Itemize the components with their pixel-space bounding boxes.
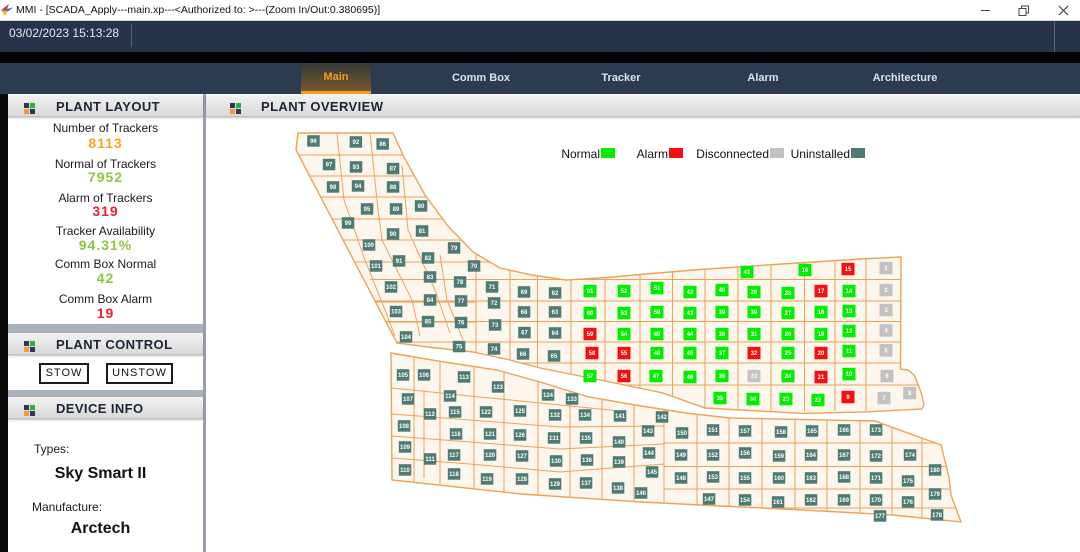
svg-text:57: 57: [587, 374, 594, 380]
svg-text:96: 96: [310, 139, 317, 145]
svg-text:117: 117: [449, 453, 459, 459]
svg-text:64: 64: [552, 331, 559, 337]
svg-text:164: 164: [806, 453, 817, 459]
svg-text:25: 25: [785, 351, 792, 357]
svg-text:122: 122: [481, 410, 492, 416]
svg-text:149: 149: [676, 453, 687, 459]
svg-text:127: 127: [517, 454, 528, 460]
svg-text:136: 136: [582, 458, 593, 464]
svg-text:89: 89: [393, 207, 400, 213]
svg-text:60: 60: [587, 311, 594, 317]
svg-text:130: 130: [551, 459, 562, 465]
svg-text:135: 135: [581, 436, 592, 442]
svg-text:46: 46: [687, 375, 694, 381]
svg-text:30: 30: [751, 310, 758, 316]
svg-text:126: 126: [515, 433, 526, 439]
svg-text:154: 154: [740, 498, 751, 504]
svg-text:18: 18: [818, 310, 825, 316]
svg-text:73: 73: [492, 323, 499, 329]
svg-text:37: 37: [719, 351, 726, 357]
svg-text:148: 148: [676, 476, 687, 482]
svg-text:81: 81: [419, 229, 426, 235]
svg-text:23: 23: [783, 397, 790, 403]
svg-text:14: 14: [846, 289, 853, 295]
svg-text:111: 111: [425, 457, 435, 463]
svg-text:161: 161: [773, 500, 784, 506]
svg-text:40: 40: [719, 288, 726, 294]
svg-text:94: 94: [355, 184, 362, 190]
svg-text:131: 131: [549, 436, 560, 442]
svg-text:97: 97: [326, 163, 333, 169]
svg-text:80: 80: [418, 204, 425, 210]
svg-text:168: 168: [839, 475, 850, 481]
svg-text:141: 141: [615, 414, 626, 420]
svg-text:150: 150: [677, 431, 688, 437]
svg-text:167: 167: [839, 453, 850, 459]
svg-text:120: 120: [485, 453, 496, 459]
svg-text:69: 69: [521, 290, 528, 296]
svg-text:44: 44: [687, 332, 694, 338]
svg-text:123: 123: [493, 385, 504, 391]
svg-text:34: 34: [750, 397, 757, 403]
svg-text:68: 68: [521, 310, 528, 316]
svg-text:85: 85: [425, 320, 432, 326]
svg-text:76: 76: [458, 321, 465, 327]
svg-text:56: 56: [621, 374, 628, 380]
svg-text:129: 129: [550, 482, 561, 488]
svg-text:12: 12: [846, 329, 853, 335]
svg-text:114: 114: [445, 394, 455, 400]
svg-text:11: 11: [846, 349, 853, 355]
svg-text:74: 74: [491, 347, 498, 353]
svg-text:70: 70: [471, 264, 478, 270]
svg-text:21: 21: [818, 375, 825, 381]
svg-text:16: 16: [802, 268, 809, 274]
svg-text:175: 175: [903, 479, 914, 485]
svg-text:48: 48: [654, 351, 661, 357]
svg-text:138: 138: [613, 486, 624, 492]
svg-text:91: 91: [396, 259, 403, 265]
svg-text:145: 145: [647, 470, 658, 476]
svg-text:50: 50: [654, 310, 661, 316]
svg-text:139: 139: [614, 460, 625, 466]
svg-text:84: 84: [427, 298, 434, 304]
svg-text:100: 100: [364, 243, 375, 249]
svg-text:147: 147: [704, 497, 715, 503]
svg-text:133: 133: [567, 397, 578, 403]
svg-text:112: 112: [425, 412, 435, 418]
svg-text:121: 121: [485, 432, 496, 438]
svg-text:125: 125: [515, 409, 526, 415]
svg-text:104: 104: [401, 335, 412, 341]
svg-text:151: 151: [708, 428, 719, 434]
svg-text:58: 58: [589, 351, 596, 357]
svg-text:53: 53: [621, 311, 628, 317]
svg-text:47: 47: [653, 374, 660, 380]
svg-text:110: 110: [400, 468, 410, 474]
svg-text:28: 28: [785, 291, 792, 297]
svg-text:27: 27: [785, 311, 792, 317]
svg-text:103: 103: [391, 310, 402, 316]
svg-text:24: 24: [785, 374, 792, 380]
svg-text:142: 142: [657, 415, 668, 421]
svg-text:66: 66: [520, 352, 527, 358]
svg-text:20: 20: [818, 351, 825, 357]
svg-text:43: 43: [687, 311, 694, 317]
svg-text:13: 13: [846, 309, 853, 315]
svg-text:174: 174: [905, 453, 916, 459]
svg-text:170: 170: [871, 498, 882, 504]
svg-text:156: 156: [740, 451, 751, 457]
svg-text:179: 179: [930, 492, 941, 498]
svg-text:177: 177: [875, 514, 886, 520]
svg-text:42: 42: [687, 290, 694, 296]
svg-text:32: 32: [751, 351, 758, 357]
svg-text:165: 165: [807, 429, 818, 435]
svg-text:82: 82: [425, 256, 432, 262]
svg-text:159: 159: [774, 454, 785, 460]
svg-text:51: 51: [654, 286, 661, 292]
svg-text:71: 71: [489, 285, 496, 291]
svg-text:29: 29: [751, 290, 758, 296]
svg-text:17: 17: [818, 289, 825, 295]
svg-text:106: 106: [419, 373, 430, 379]
svg-text:35: 35: [717, 396, 724, 402]
svg-text:178: 178: [932, 513, 943, 519]
svg-text:155: 155: [740, 476, 751, 482]
svg-text:157: 157: [740, 429, 751, 435]
svg-text:99: 99: [345, 221, 352, 227]
svg-text:33: 33: [751, 374, 758, 380]
svg-text:163: 163: [806, 476, 817, 482]
svg-text:93: 93: [353, 165, 360, 171]
svg-text:86: 86: [379, 142, 386, 148]
svg-text:108: 108: [399, 424, 410, 430]
svg-text:116: 116: [451, 432, 461, 438]
svg-text:19: 19: [818, 332, 825, 338]
svg-text:31: 31: [751, 332, 758, 338]
svg-text:15: 15: [845, 267, 852, 273]
svg-text:152: 152: [708, 453, 719, 459]
svg-text:124: 124: [543, 393, 554, 399]
svg-text:95: 95: [364, 207, 371, 213]
svg-text:153: 153: [708, 475, 719, 481]
svg-text:67: 67: [521, 331, 528, 337]
svg-text:55: 55: [621, 351, 628, 357]
svg-text:75: 75: [456, 345, 463, 351]
svg-text:22: 22: [815, 398, 822, 404]
svg-text:162: 162: [806, 498, 817, 504]
svg-text:38: 38: [719, 332, 726, 338]
svg-text:92: 92: [353, 140, 360, 146]
svg-text:79: 79: [451, 246, 458, 252]
svg-text:72: 72: [491, 301, 498, 307]
svg-text:101: 101: [371, 264, 382, 270]
svg-text:78: 78: [457, 280, 464, 286]
svg-text:49: 49: [654, 332, 661, 338]
svg-text:132: 132: [550, 413, 561, 419]
svg-text:52: 52: [621, 289, 628, 295]
svg-text:146: 146: [636, 491, 647, 497]
svg-text:45: 45: [687, 351, 694, 357]
svg-text:160: 160: [774, 476, 785, 482]
svg-text:63: 63: [552, 310, 559, 316]
svg-text:65: 65: [551, 354, 558, 360]
svg-text:176: 176: [903, 500, 914, 506]
svg-text:109: 109: [400, 445, 411, 451]
svg-text:180: 180: [930, 468, 941, 474]
svg-text:113: 113: [459, 375, 469, 381]
svg-text:10: 10: [846, 372, 853, 378]
svg-text:61: 61: [587, 289, 594, 295]
svg-text:83: 83: [427, 275, 434, 281]
svg-text:143: 143: [643, 429, 654, 435]
svg-text:88: 88: [390, 185, 397, 191]
svg-text:119: 119: [482, 477, 492, 483]
svg-text:36: 36: [719, 374, 726, 380]
svg-text:137: 137: [581, 481, 592, 487]
svg-text:102: 102: [386, 285, 397, 291]
svg-text:98: 98: [330, 185, 337, 191]
svg-text:172: 172: [871, 454, 882, 460]
svg-text:169: 169: [839, 498, 850, 504]
svg-text:158: 158: [776, 430, 787, 436]
svg-text:105: 105: [398, 373, 409, 379]
svg-text:128: 128: [517, 477, 528, 483]
svg-text:54: 54: [621, 332, 628, 338]
svg-text:134: 134: [580, 413, 591, 419]
svg-text:118: 118: [449, 472, 459, 478]
svg-text:90: 90: [390, 232, 397, 238]
svg-text:26: 26: [785, 332, 792, 338]
svg-text:59: 59: [587, 332, 594, 338]
svg-text:107: 107: [403, 397, 414, 403]
svg-text:173: 173: [871, 428, 882, 434]
svg-text:62: 62: [552, 291, 559, 297]
svg-text:115: 115: [450, 410, 460, 416]
svg-text:166: 166: [839, 428, 850, 434]
svg-text:144: 144: [644, 451, 655, 457]
svg-text:39: 39: [719, 310, 726, 316]
svg-text:171: 171: [871, 476, 882, 482]
svg-text:140: 140: [614, 440, 625, 446]
svg-text:41: 41: [744, 270, 751, 276]
svg-text:77: 77: [458, 299, 465, 305]
svg-text:87: 87: [390, 167, 397, 173]
